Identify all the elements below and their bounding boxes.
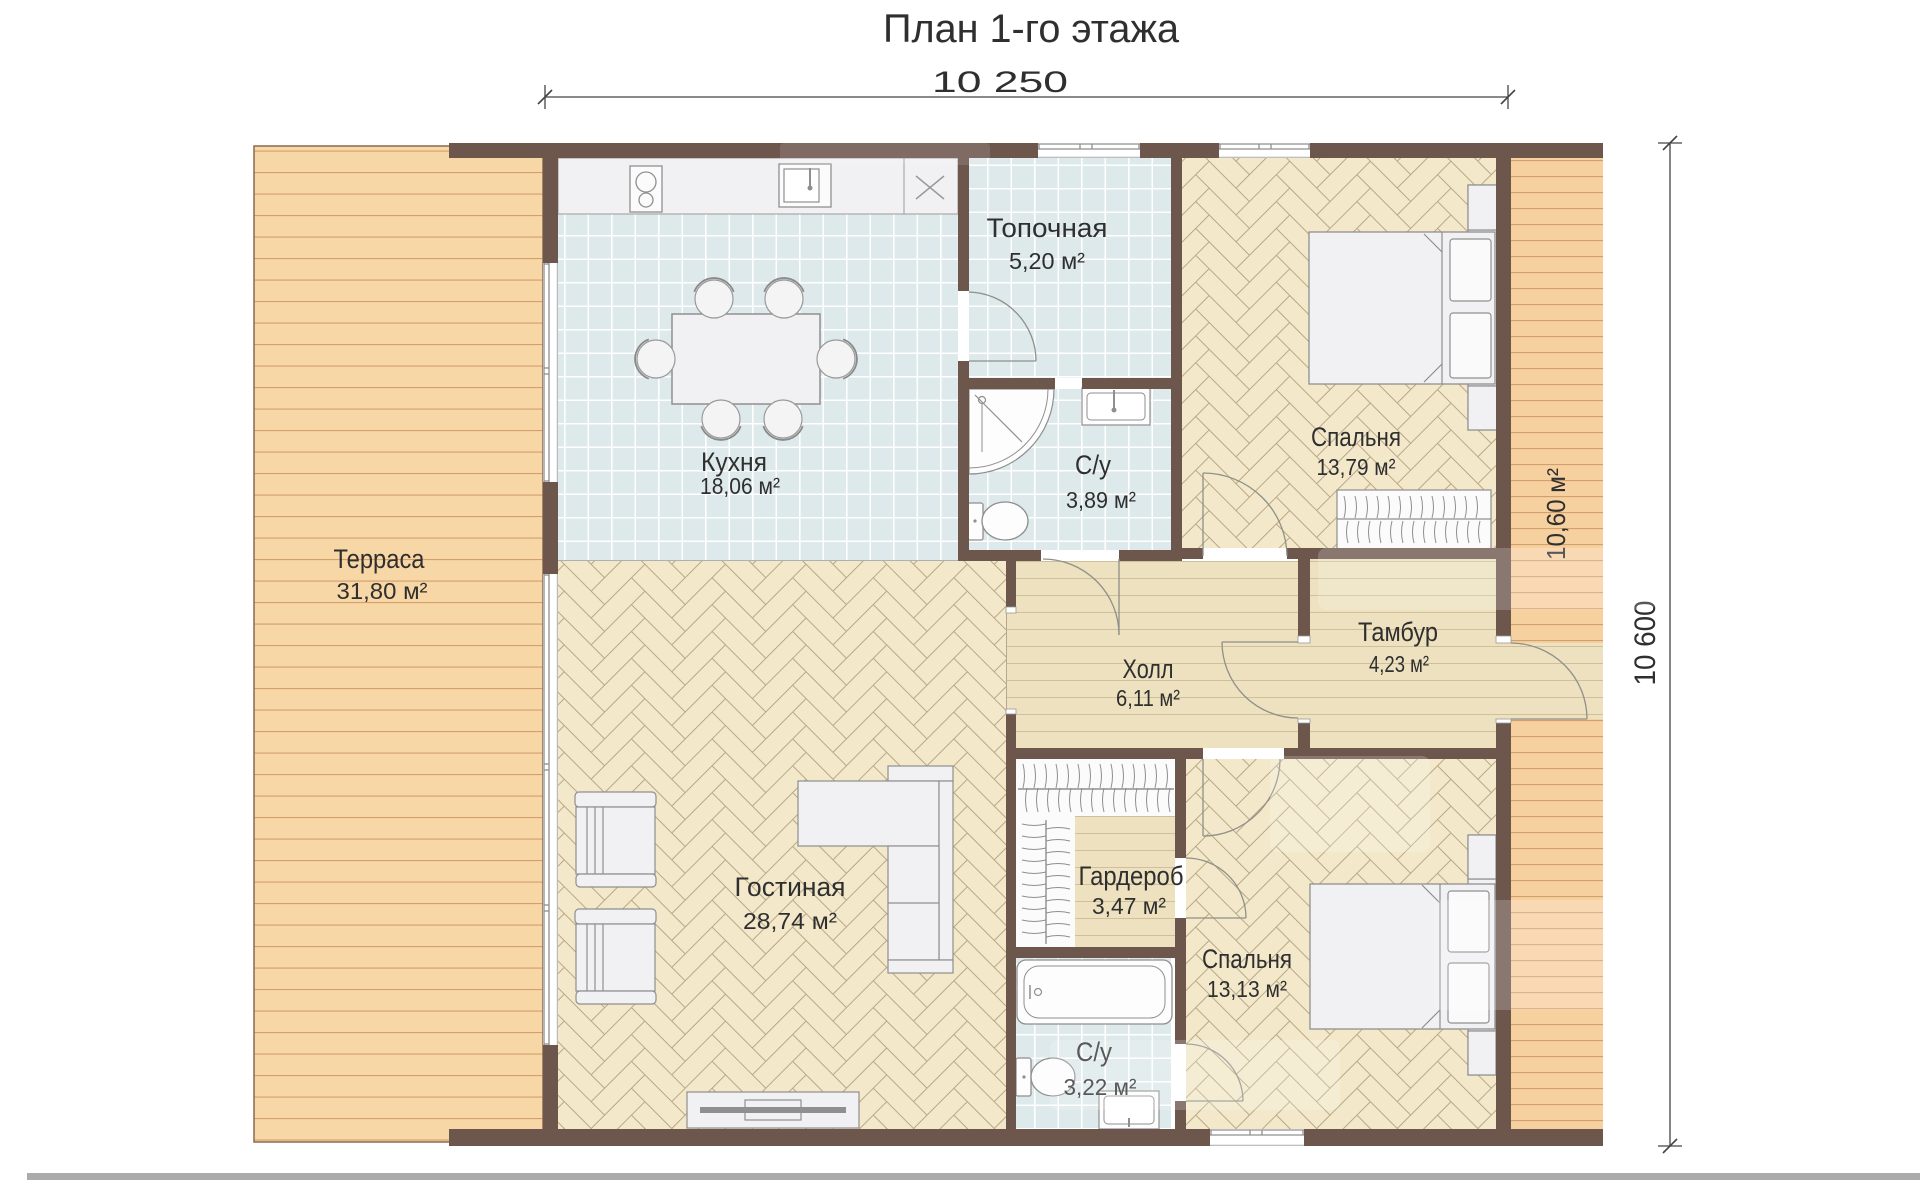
- svg-text:31,80 м²: 31,80 м²: [337, 578, 428, 604]
- svg-text:Спальня: Спальня: [1311, 422, 1401, 452]
- svg-text:Топочная: Топочная: [987, 213, 1108, 243]
- svg-text:13,13 м²: 13,13 м²: [1207, 976, 1287, 1002]
- svg-text:10,60 м²: 10,60 м²: [1541, 468, 1571, 560]
- svg-text:6,11 м²: 6,11 м²: [1116, 685, 1180, 711]
- svg-text:13,79 м²: 13,79 м²: [1317, 454, 1396, 480]
- svg-text:Спальня: Спальня: [1202, 944, 1292, 974]
- svg-text:10 600: 10 600: [1629, 601, 1662, 686]
- svg-text:3,89 м²: 3,89 м²: [1066, 487, 1136, 513]
- svg-text:5,20 м²: 5,20 м²: [1009, 248, 1085, 274]
- svg-text:С/у: С/у: [1075, 450, 1111, 480]
- svg-text:4,23 м²: 4,23 м²: [1369, 651, 1429, 677]
- svg-text:Холл: Холл: [1123, 654, 1174, 684]
- svg-text:Тамбур: Тамбур: [1358, 617, 1438, 647]
- svg-text:Гостиная: Гостиная: [735, 872, 846, 902]
- svg-text:Гардероб: Гардероб: [1079, 861, 1184, 891]
- svg-text:План 1-го этажа: План 1-го этажа: [883, 7, 1180, 51]
- svg-text:28,74 м²: 28,74 м²: [743, 908, 837, 934]
- svg-text:3,47 м²: 3,47 м²: [1092, 893, 1166, 919]
- svg-text:Терраса: Терраса: [334, 544, 426, 574]
- svg-text:10 250: 10 250: [932, 66, 1068, 99]
- svg-text:18,06 м²: 18,06 м²: [700, 473, 780, 499]
